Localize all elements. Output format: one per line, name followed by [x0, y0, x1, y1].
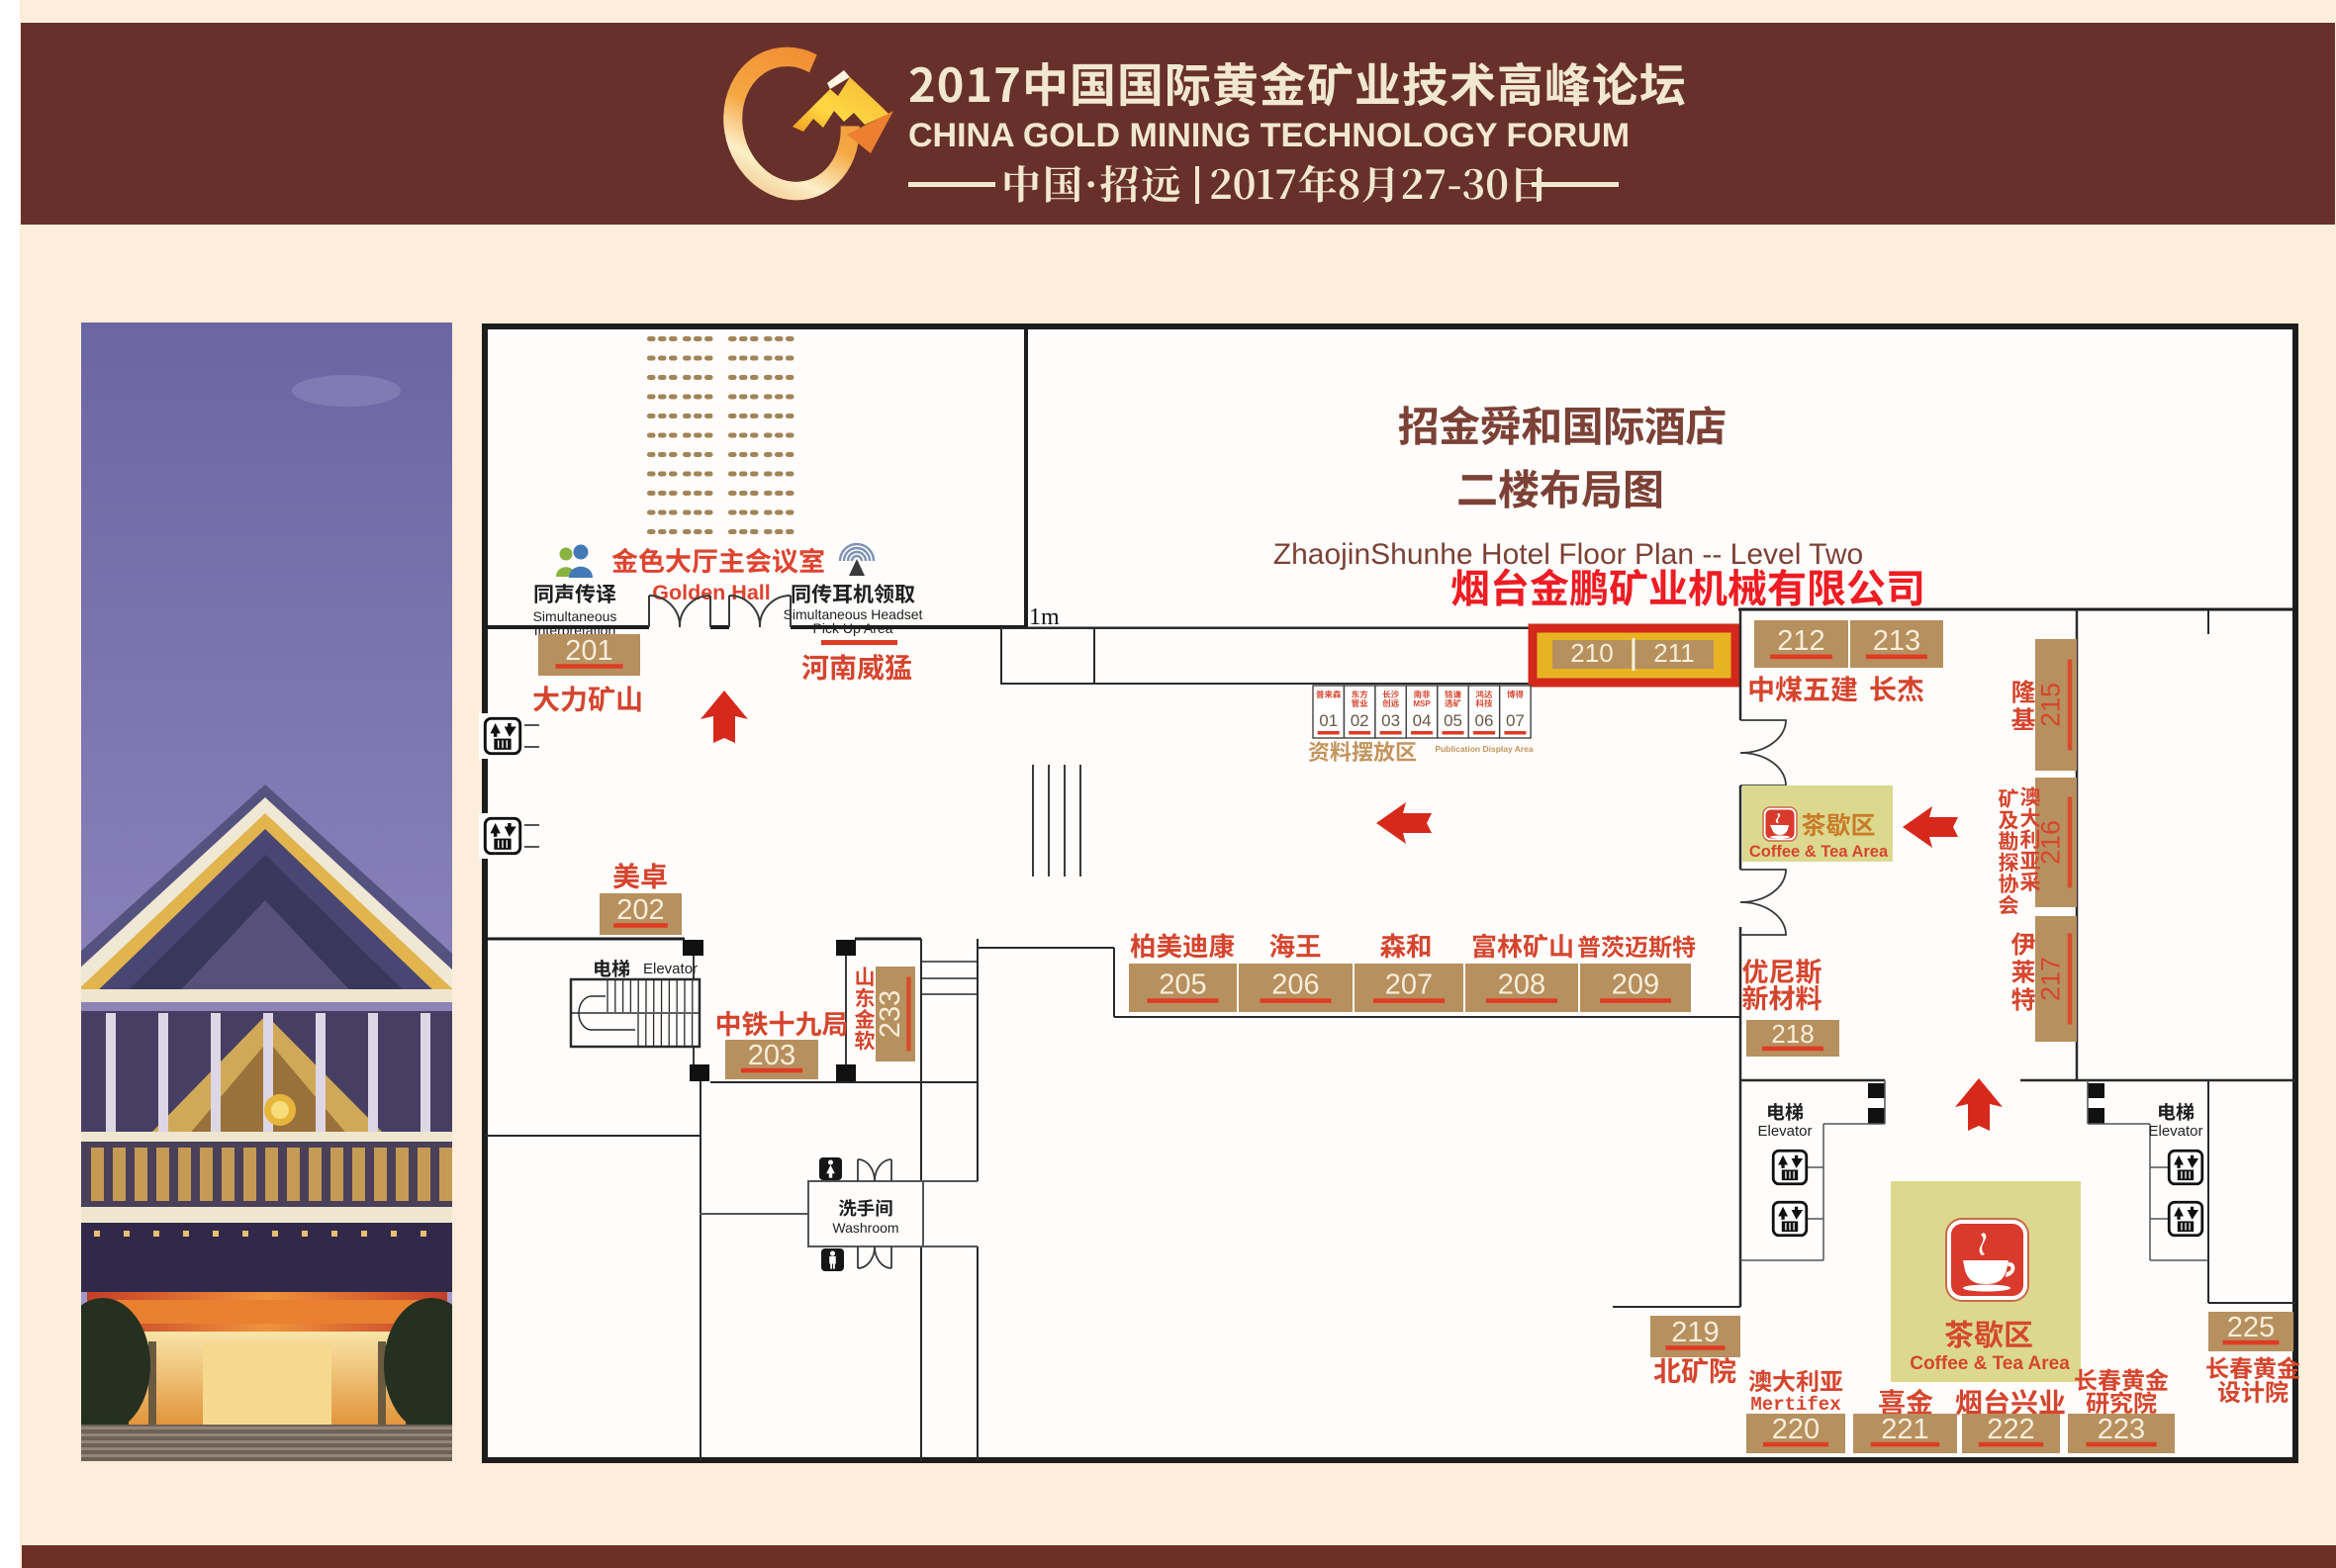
svg-text:05: 05 [1444, 711, 1462, 730]
svg-text:205: 205 [1159, 968, 1206, 1000]
svg-text:06: 06 [1475, 711, 1494, 730]
svg-text:215: 215 [2036, 683, 2066, 727]
svg-text:Elevator: Elevator [2148, 1123, 2202, 1140]
svg-text:Elevator: Elevator [1757, 1123, 1812, 1140]
svg-text:216: 216 [2036, 820, 2066, 865]
svg-text:206: 206 [1271, 968, 1319, 1000]
svg-text:Pick Up Area: Pick Up Area [813, 620, 893, 636]
svg-text:210: 210 [1570, 638, 1613, 668]
svg-text:223: 223 [2098, 1414, 2145, 1445]
svg-text:1m: 1m [1029, 604, 1060, 630]
svg-text:04: 04 [1413, 711, 1432, 730]
svg-text:201: 201 [565, 635, 612, 667]
svg-text:01: 01 [1319, 711, 1338, 730]
svg-text:ZhaojinShunhe Hotel Floor Plan: ZhaojinShunhe Hotel Floor Plan -- Level … [1273, 538, 1863, 571]
svg-text:218: 218 [1771, 1019, 1814, 1049]
svg-text:Coffee & Tea Area: Coffee & Tea Area [1749, 843, 1889, 861]
svg-text:202: 202 [616, 894, 664, 926]
svg-text:Mertifex: Mertifex [1750, 1394, 1840, 1416]
svg-text:211: 211 [1653, 638, 1694, 668]
svg-text:213: 213 [1873, 625, 1920, 657]
svg-text:225: 225 [2227, 1312, 2275, 1343]
svg-text:Washroom: Washroom [832, 1220, 898, 1236]
svg-text:MSP: MSP [1413, 699, 1431, 708]
svg-text:221: 221 [1881, 1414, 1928, 1445]
svg-text:Publication Display Area: Publication Display Area [1435, 744, 1534, 754]
svg-text:212: 212 [1777, 625, 1824, 657]
svg-text:219: 219 [1671, 1317, 1719, 1348]
svg-text:222: 222 [1987, 1414, 2034, 1445]
svg-text:Coffee & Tea Area: Coffee & Tea Area [1910, 1353, 2070, 1374]
svg-text:217: 217 [2036, 957, 2066, 1001]
svg-text:Elevator: Elevator [643, 961, 698, 977]
svg-text:207: 207 [1385, 968, 1433, 1000]
svg-text:07: 07 [1506, 711, 1525, 730]
svg-text:02: 02 [1351, 711, 1369, 730]
svg-text:203: 203 [748, 1040, 795, 1071]
svg-text:03: 03 [1381, 711, 1400, 730]
svg-text:208: 208 [1498, 968, 1545, 1000]
svg-text:CHINA GOLD MINING TECHNOLOGY F: CHINA GOLD MINING TECHNOLOGY FORUM [908, 117, 1630, 154]
svg-text:220: 220 [1772, 1414, 1820, 1445]
svg-text:209: 209 [1612, 968, 1659, 1000]
svg-text:233: 233 [875, 990, 906, 1038]
